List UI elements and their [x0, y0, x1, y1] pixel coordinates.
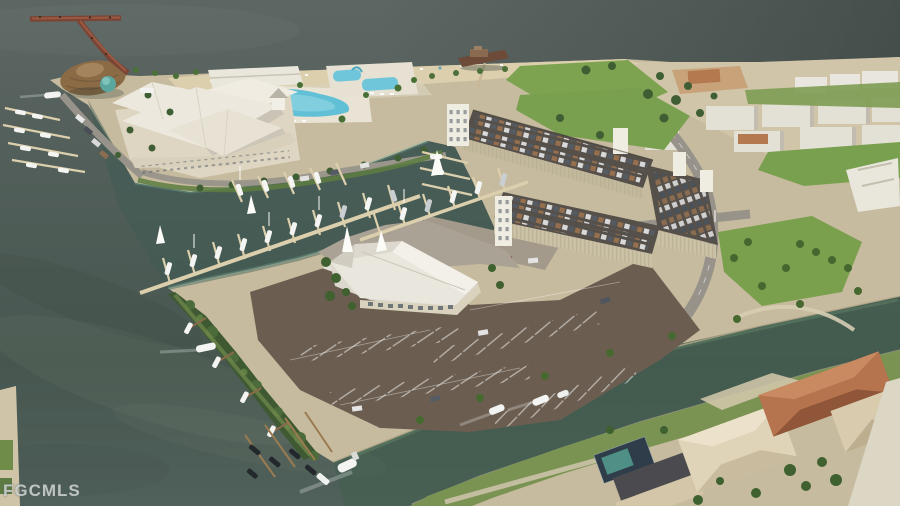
mls-watermark: FGCMLS: [3, 481, 81, 501]
cupola: [272, 97, 285, 110]
clubhouse: [112, 78, 300, 178]
aerial-rendering: FGCMLS: [0, 0, 900, 506]
